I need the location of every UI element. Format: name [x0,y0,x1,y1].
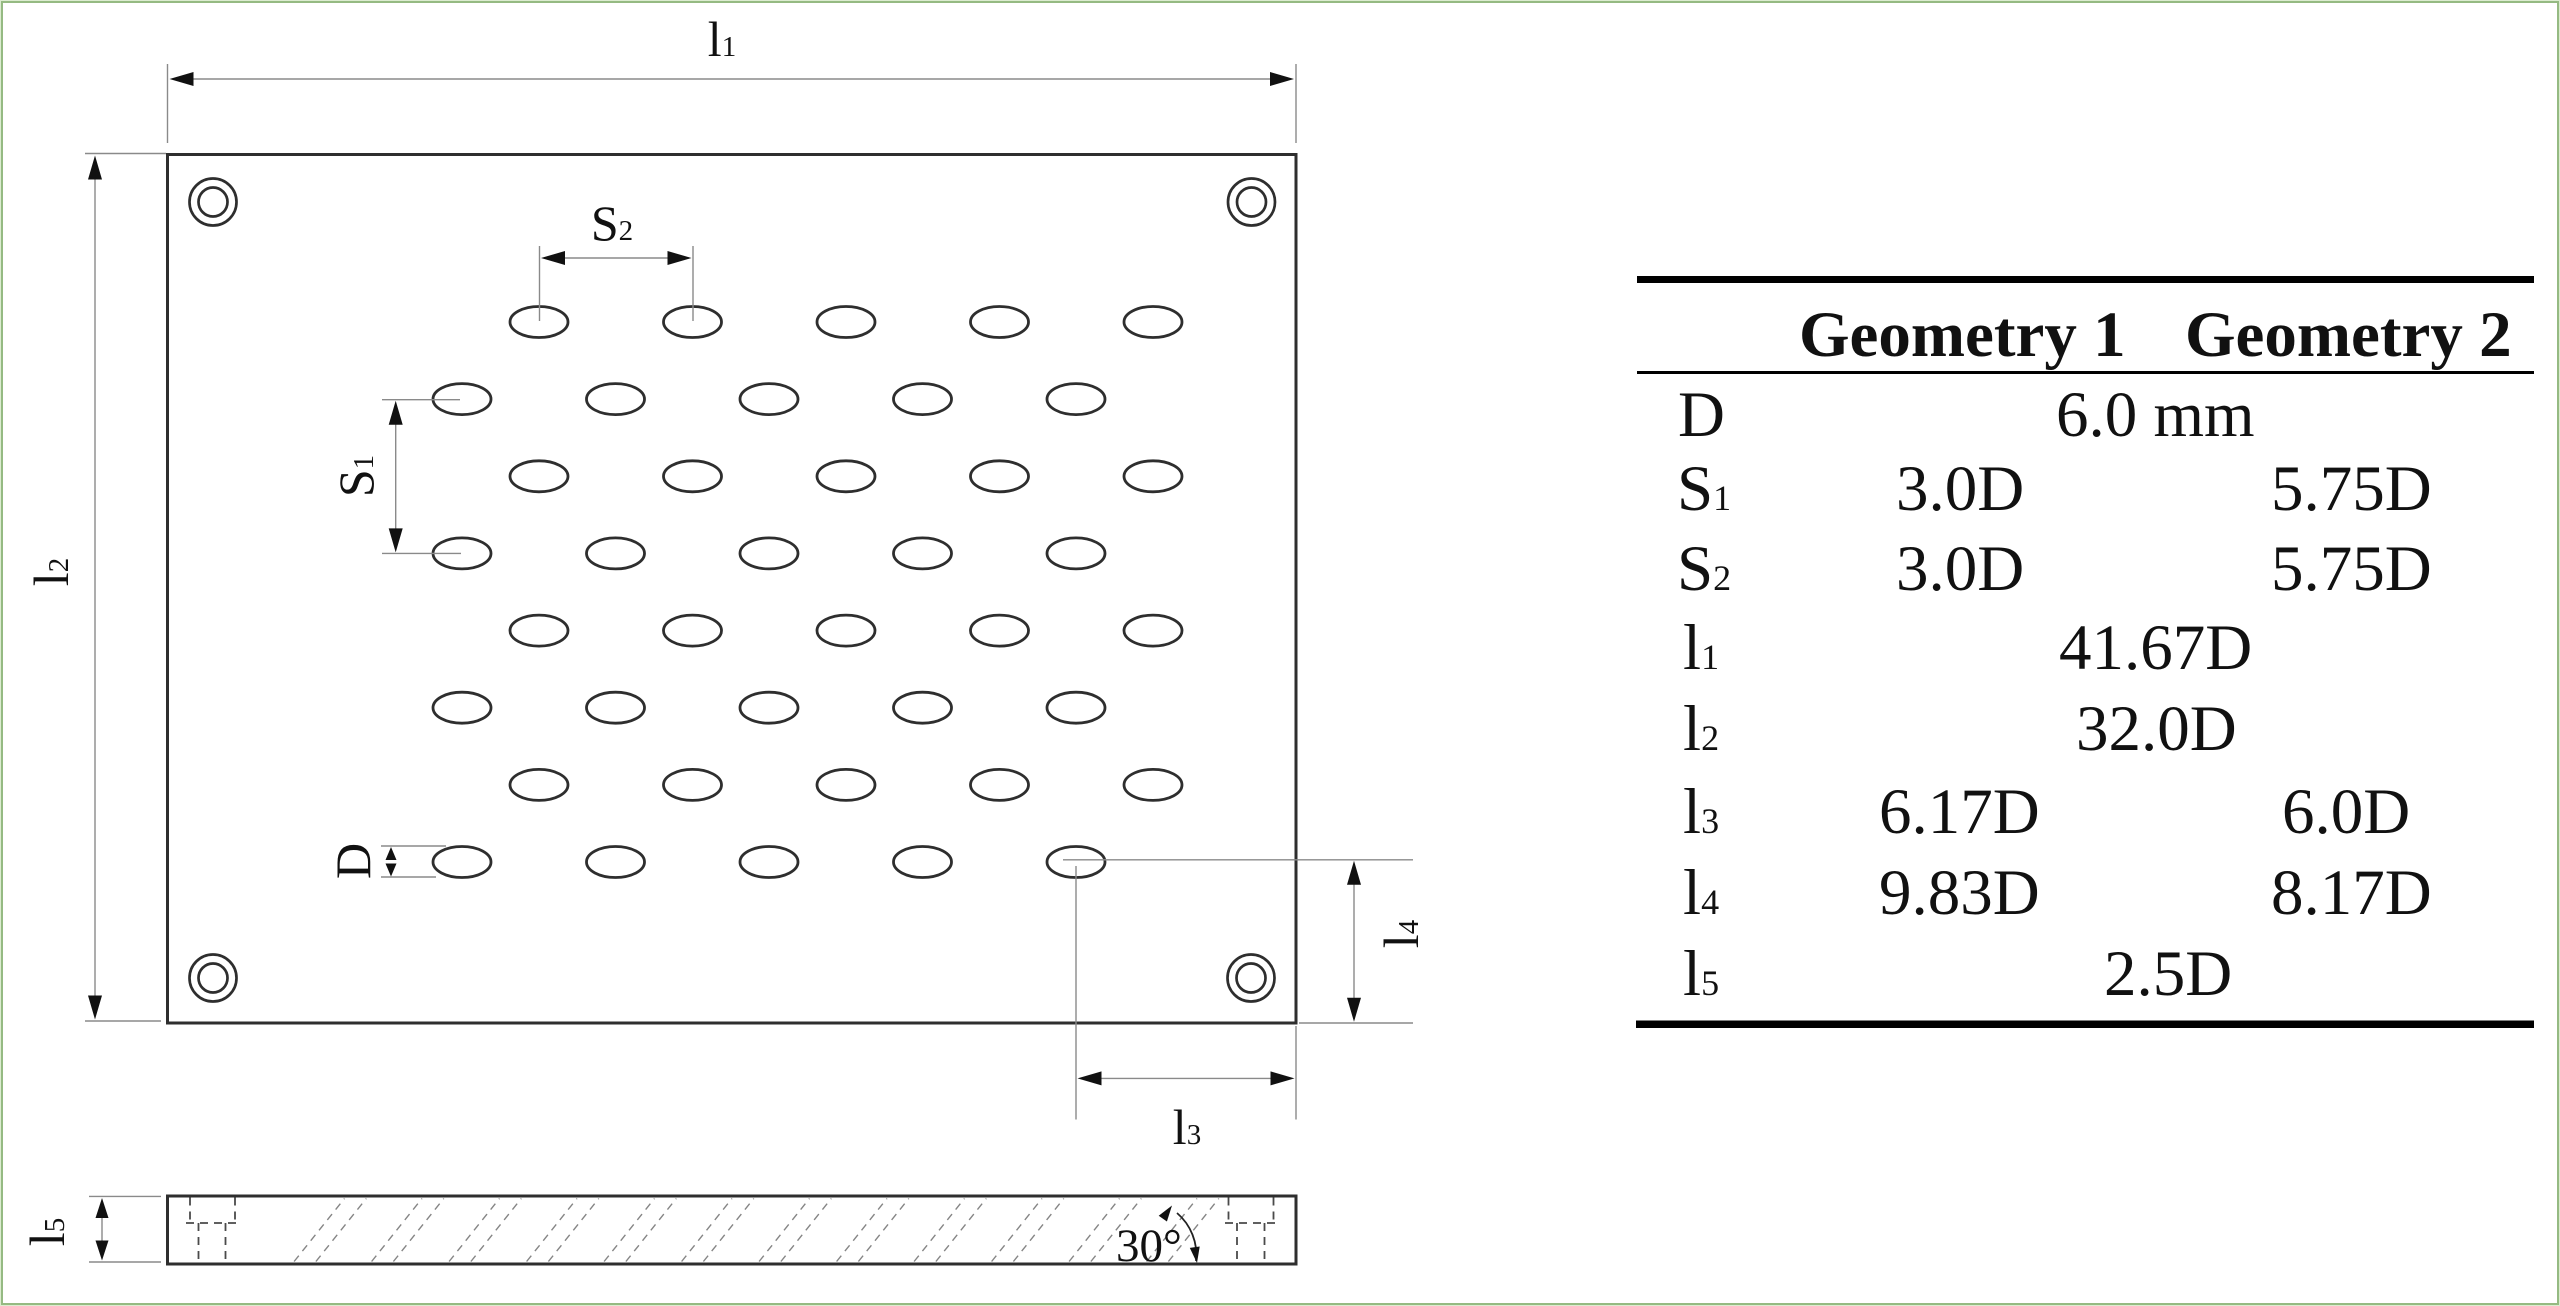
svg-text:6.17D: 6.17D [1879,776,2040,848]
svg-text:9.83D: 9.83D [1879,857,2040,929]
svg-text:S1: S1 [1677,453,1731,525]
svg-text:l4: l4 [1373,919,1429,948]
svg-text:l4: l4 [1683,857,1719,929]
svg-text:5.75D: 5.75D [2271,533,2432,605]
svg-text:41.67D: 41.67D [2059,612,2252,684]
svg-text:6.0 mm: 6.0 mm [2056,379,2255,451]
svg-text:Geometry 1: Geometry 1 [1799,299,2126,371]
svg-text:S2: S2 [1677,533,1731,605]
svg-text:3.0D: 3.0D [1896,533,2024,605]
svg-text:30°: 30° [1116,1220,1182,1272]
svg-text:2.5D: 2.5D [2104,938,2232,1010]
svg-text:l3: l3 [1683,776,1719,848]
svg-text:l2: l2 [23,558,79,586]
svg-text:32.0D: 32.0D [2076,693,2237,765]
svg-text:8.17D: 8.17D [2271,857,2432,929]
svg-text:D: D [1678,379,1725,451]
svg-text:D: D [325,843,381,879]
svg-text:l5: l5 [19,1218,75,1246]
svg-text:l3: l3 [1173,1099,1201,1155]
svg-text:3.0D: 3.0D [1896,453,2024,525]
svg-text:l1: l1 [1683,612,1719,684]
svg-text:6.0D: 6.0D [2282,776,2410,848]
svg-text:Geometry 2: Geometry 2 [2185,299,2512,371]
svg-text:5.75D: 5.75D [2271,453,2432,525]
svg-text:l1: l1 [708,11,736,67]
svg-text:l2: l2 [1683,693,1719,765]
svg-text:l5: l5 [1683,938,1719,1010]
